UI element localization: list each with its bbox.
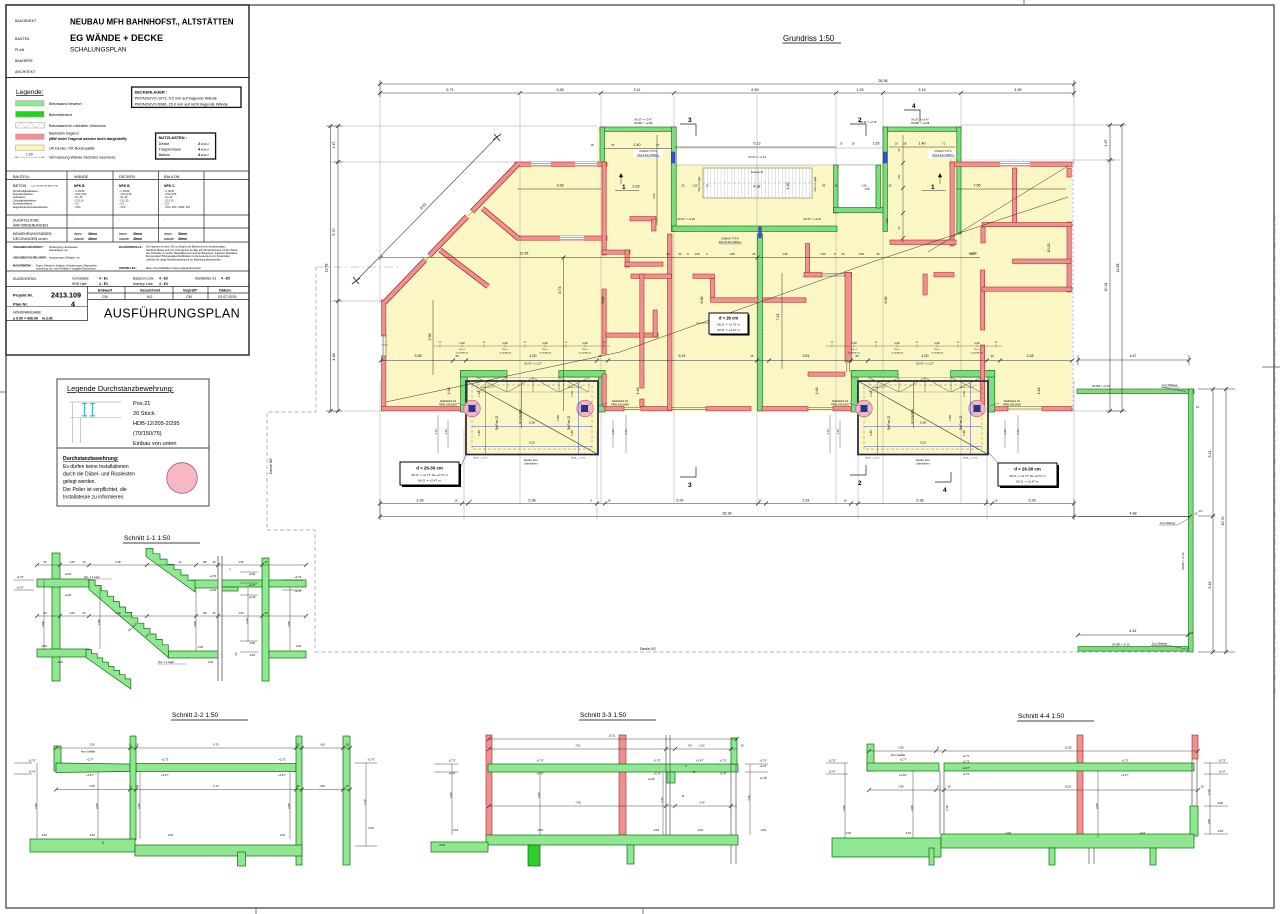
svg-text:OK.B. = +2.73': OK.B. = +2.73' bbox=[963, 458, 978, 460]
svg-text:18': 18' bbox=[903, 142, 907, 146]
svg-text:-0.18: -0.18 bbox=[452, 828, 459, 832]
svg-text:RRW 100/100/6: RRW 100/100/6 bbox=[831, 403, 849, 406]
svg-text:-0.18: -0.18 bbox=[760, 828, 767, 832]
svg-text:72': 72' bbox=[898, 226, 901, 230]
svg-text:+2.21': +2.21' bbox=[962, 772, 970, 776]
svg-text:3: 3 bbox=[198, 153, 200, 157]
svg-text:18: 18 bbox=[741, 744, 744, 748]
svg-text:+2.47': +2.47' bbox=[448, 772, 456, 776]
svg-text:Es dürfen keine Installationen: Es dürfen keine Installationen bbox=[63, 464, 129, 470]
svg-text:Pos.1: Pos.1 bbox=[582, 349, 588, 351]
svg-text:-0.18: -0.18 bbox=[697, 828, 704, 832]
svg-text:G-24/295'-A: G-24/295'-A bbox=[539, 352, 551, 355]
svg-text:2.95: 2.95 bbox=[898, 746, 904, 750]
svg-text:1.86: 1.86 bbox=[729, 252, 735, 256]
svg-text:28.36: 28.36 bbox=[722, 512, 731, 516]
svg-text:Plan Nr.: Plan Nr. bbox=[13, 301, 28, 306]
svg-text:90': 90' bbox=[822, 184, 826, 188]
svg-text:-0.18: -0.18 bbox=[167, 833, 174, 837]
svg-text:UK Decke / OK Bodenplatte: UK Decke / OK Bodenplatte bbox=[49, 146, 95, 150]
svg-text:10.21: 10.21 bbox=[609, 734, 616, 738]
svg-text:25: 25 bbox=[297, 743, 300, 747]
svg-text:BETON: BETON bbox=[13, 183, 27, 188]
svg-text:Pos.21: Pos.21 bbox=[133, 401, 150, 407]
svg-text:+2.47': +2.47' bbox=[1218, 770, 1226, 774]
svg-text:Pos.9 2xL=125cm: Pos.9 2xL=125cm bbox=[933, 153, 954, 157]
svg-text:2.65': 2.65' bbox=[95, 803, 99, 809]
svg-text:OK.BR = +0.10: OK.BR = +0.10 bbox=[1112, 643, 1130, 647]
svg-text:-0.18: -0.18 bbox=[41, 644, 48, 648]
svg-text:1.00: 1.00 bbox=[820, 252, 826, 256]
svg-text:1.00: 1.00 bbox=[694, 252, 700, 256]
svg-text:5x Pos.21: 5x Pos.21 bbox=[959, 415, 963, 430]
svg-text:-0.18: -0.18 bbox=[1217, 829, 1224, 833]
svg-text:4 - E5: 4 - E5 bbox=[221, 276, 230, 280]
svg-text:Pos.2: Pos.2 bbox=[934, 349, 940, 351]
svg-text:OK.BR. = +2.98: OK.BR. = +2.98 bbox=[634, 121, 653, 125]
svg-text:Decke UG: Decke UG bbox=[640, 647, 656, 651]
svg-text:RRW 100/100/6: RRW 100/100/6 bbox=[1003, 403, 1021, 406]
svg-text:HDB Liste: HDB Liste bbox=[72, 282, 87, 286]
svg-text:RRW 100/100/6: RRW 100/100/6 bbox=[439, 403, 457, 406]
svg-text:11.68: 11.68 bbox=[325, 264, 329, 273]
svg-text:OK.B. = +2.77': OK.B. = +2.77' bbox=[480, 387, 495, 389]
svg-text:DECKUNGEN cnom: DECKUNGEN cnom bbox=[13, 237, 48, 241]
svg-text:+2.73': +2.73' bbox=[278, 758, 286, 762]
svg-text:1: 1 bbox=[622, 184, 626, 191]
svg-text:(70/150/75): (70/150/75) bbox=[133, 431, 162, 437]
svg-text:-0.18: -0.18 bbox=[1139, 831, 1146, 835]
svg-text:SPEZIELLES :: SPEZIELLES : bbox=[119, 266, 137, 270]
svg-text:AO: AO bbox=[147, 295, 152, 299]
svg-text:Pos.1 2.Lager: Pos.1 2.Lager bbox=[698, 176, 701, 191]
svg-text:-0.18: -0.18 bbox=[279, 833, 286, 837]
svg-text:NEUBAU MFH BAHNHOFST., ALTSTÄT: NEUBAU MFH BAHNHOFST., ALTSTÄTTEN bbox=[70, 18, 234, 27]
svg-text:innen: innen bbox=[119, 232, 127, 236]
svg-text:+2.47'': +2.47'' bbox=[696, 759, 704, 763]
svg-text:+2.47'': +2.47'' bbox=[1121, 773, 1129, 777]
svg-text:G-24/295-SL: G-24/295-SL bbox=[848, 353, 861, 355]
svg-text:+2.77': +2.77' bbox=[899, 758, 907, 762]
svg-text:4: 4 bbox=[912, 103, 916, 110]
svg-text:AUSFÜHRUNGSPLAN: AUSFÜHRUNGSPLAN bbox=[104, 307, 240, 321]
svg-text:1.65: 1.65 bbox=[238, 611, 244, 615]
svg-text:+2.73': +2.73' bbox=[448, 759, 456, 763]
svg-text:Pos.1 2.Lager: Pos.1 2.Lager bbox=[814, 176, 817, 191]
svg-text:1.05: 1.05 bbox=[69, 560, 75, 564]
svg-text:1.52': 1.52' bbox=[1207, 789, 1211, 795]
svg-text:7.36: 7.36 bbox=[575, 801, 581, 805]
svg-text:-0.18: -0.18 bbox=[41, 833, 48, 837]
svg-text:8.73: 8.73 bbox=[558, 287, 562, 294]
svg-text:+2.77': +2.77' bbox=[86, 758, 94, 762]
svg-text:Isotrepp 16: Isotrepp 16 bbox=[751, 171, 764, 174]
svg-text:16: 16 bbox=[346, 784, 349, 788]
svg-text:RRW 100/100/6: RRW 100/100/6 bbox=[611, 403, 629, 406]
svg-text:4 - E3: 4 - E3 bbox=[159, 276, 168, 280]
svg-text:3.19: 3.19 bbox=[918, 88, 925, 92]
svg-text:95': 95' bbox=[203, 611, 207, 615]
svg-text:+2.81': +2.81' bbox=[64, 572, 72, 576]
svg-text:SCHALUNGSPLAN: SCHALUNGSPLAN bbox=[70, 47, 127, 54]
svg-text:+2.47': +2.47' bbox=[828, 770, 836, 774]
svg-text:ANGABEN ARCHITEKT :: ANGABEN ARCHITEKT : bbox=[13, 245, 45, 249]
svg-text:Datum: Datum bbox=[219, 288, 231, 292]
svg-text:18: 18 bbox=[346, 743, 349, 747]
svg-text:13: 13 bbox=[83, 560, 86, 564]
svg-text:Durchstanzbewehrung:: Durchstanzbewehrung: bbox=[63, 456, 119, 462]
svg-text:11.68: 11.68 bbox=[1116, 264, 1120, 273]
svg-text:OK.W. = +2.70': OK.W. = +2.70' bbox=[859, 120, 877, 124]
svg-text:CM: CM bbox=[102, 295, 108, 299]
svg-text:1.05: 1.05 bbox=[69, 611, 75, 615]
svg-text:1.85: 1.85 bbox=[570, 430, 574, 436]
svg-text:UK.ST. = +2.27': UK.ST. = +2.27' bbox=[524, 362, 543, 366]
svg-text:16: 16 bbox=[213, 611, 216, 615]
svg-text:3.11: 3.11 bbox=[634, 88, 641, 92]
svg-text:-0.44: -0.44 bbox=[207, 660, 214, 664]
svg-text:Pos.16 2xL=125cm: Pos.16 2xL=125cm bbox=[719, 240, 741, 244]
svg-text:4.44': 4.44' bbox=[1129, 629, 1137, 633]
svg-text:+2.73': +2.73' bbox=[367, 758, 375, 762]
svg-text:-0.44: -0.44 bbox=[57, 660, 64, 664]
svg-text:4 - E1: 4 - E1 bbox=[99, 276, 108, 280]
svg-text:2.95: 2.95 bbox=[556, 415, 560, 421]
svg-text:aussen: aussen bbox=[164, 237, 175, 241]
svg-text:1.60: 1.60 bbox=[319, 743, 325, 747]
svg-text:16: 16 bbox=[213, 560, 216, 564]
svg-text:1.65: 1.65 bbox=[861, 184, 867, 188]
svg-text:1.47: 1.47 bbox=[332, 141, 336, 148]
svg-text:1.00: 1.00 bbox=[974, 341, 980, 345]
svg-text:1.12: 1.12 bbox=[477, 391, 481, 397]
svg-text:1.00: 1.00 bbox=[934, 341, 940, 345]
svg-text:UK.D. = +2.47' m: UK.D. = +2.47' m bbox=[1016, 480, 1039, 484]
svg-text:innen: innen bbox=[164, 232, 172, 236]
svg-text:Legende:: Legende: bbox=[16, 89, 44, 96]
svg-text:1.81': 1.81' bbox=[898, 174, 901, 180]
svg-text:-: - bbox=[74, 218, 75, 222]
svg-text:+2.73': +2.73' bbox=[16, 575, 24, 579]
svg-text:OK.BR = +0.10: OK.BR = +0.10 bbox=[1092, 384, 1110, 388]
svg-text:4.18': 4.18' bbox=[115, 560, 121, 564]
svg-text:2.42: 2.42 bbox=[699, 801, 705, 805]
svg-text:+2.73': +2.73' bbox=[161, 758, 169, 762]
svg-text:+2.40'': +2.40'' bbox=[899, 773, 907, 777]
svg-text:2.95: 2.95 bbox=[89, 784, 95, 788]
svg-text:Schnitt 1-1 1:50: Schnitt 1-1 1:50 bbox=[124, 535, 171, 542]
svg-text:Cornaclade: Cornaclade bbox=[72, 276, 89, 280]
svg-text:+2.73': +2.73' bbox=[294, 575, 302, 579]
svg-text:-0.39': -0.39' bbox=[439, 843, 446, 847]
svg-text:OK.B. = +2.73': OK.B. = +2.73' bbox=[865, 458, 880, 460]
svg-text:30mm: 30mm bbox=[133, 232, 142, 236]
svg-text:PRONOUVO-5086, 15.0 mm auf nic: PRONOUVO-5086, 15.0 mm auf nicht tragend… bbox=[135, 102, 228, 106]
svg-text:3: 3 bbox=[688, 482, 692, 489]
svg-text:1.32: 1.32 bbox=[885, 218, 889, 224]
svg-text:MAUERWERK :: MAUERWERK : bbox=[13, 263, 33, 267]
svg-text:6.24: 6.24 bbox=[676, 499, 683, 503]
svg-text:CM: CM bbox=[186, 295, 192, 299]
svg-text:PRONOUVO-1073, 5.0 mm auf trag: PRONOUVO-1073, 5.0 mm auf tragende Wände bbox=[135, 97, 217, 101]
svg-text:03.07.2025: 03.07.2025 bbox=[218, 295, 236, 299]
svg-text:abgedeckte Expositionsklassen: abgedeckte Expositionsklassen : bbox=[13, 206, 50, 209]
svg-text:2.36: 2.36 bbox=[747, 795, 751, 801]
svg-text:Backstein tragend: Backstein tragend bbox=[49, 131, 79, 135]
svg-text:+2.73': +2.73' bbox=[536, 759, 544, 763]
svg-text:25: 25 bbox=[265, 560, 268, 564]
svg-text:OK.B. = +2.73': OK.B. = +2.73' bbox=[473, 458, 488, 460]
svg-text:+2.47'': +2.47'' bbox=[278, 773, 286, 777]
svg-text:20 Stück: 20 Stück bbox=[133, 411, 155, 417]
svg-text:2.34: 2.34 bbox=[245, 618, 249, 624]
svg-text:72': 72' bbox=[898, 148, 901, 152]
svg-text:Stahlstütze S1: Stahlstütze S1 bbox=[195, 276, 216, 280]
svg-text:+2.73': +2.73' bbox=[28, 759, 36, 763]
svg-text:18: 18 bbox=[136, 784, 139, 788]
svg-text:NPK B: NPK B bbox=[119, 184, 130, 188]
svg-text:4 - E2: 4 - E2 bbox=[99, 282, 108, 286]
svg-text:OK.B. = +2.73': OK.B. = +2.73' bbox=[571, 458, 586, 460]
svg-text:Pos. 1 2.Lager: Pos. 1 2.Lager bbox=[158, 661, 174, 664]
svg-text:40mm: 40mm bbox=[133, 237, 142, 241]
svg-text:1cm Dilafuge: 1cm Dilafuge bbox=[1160, 521, 1176, 525]
svg-text:2.65': 2.65' bbox=[910, 805, 914, 811]
svg-text:3: 3 bbox=[688, 117, 692, 124]
svg-text:Pos.2: Pos.2 bbox=[542, 349, 548, 351]
svg-text:ZUGEHÖRIG:: ZUGEHÖRIG: bbox=[13, 277, 37, 281]
svg-text:12': 12' bbox=[234, 652, 238, 656]
svg-text:DECKENLAGER :: DECKENLAGER : bbox=[135, 89, 167, 94]
svg-text:Treppenhaus: Treppenhaus bbox=[159, 148, 181, 152]
svg-text:UK.D. = +2.47' m: UK.D. = +2.47' m bbox=[418, 479, 441, 483]
svg-text:7.59: 7.59 bbox=[968, 252, 974, 256]
svg-text:ANFORDERUNGEN: ANFORDERUNGEN bbox=[13, 223, 48, 227]
svg-text:1.48: 1.48 bbox=[636, 388, 640, 395]
svg-text:2.65': 2.65' bbox=[1095, 803, 1099, 809]
svg-text:Grundriss 1:50: Grundriss 1:50 bbox=[783, 34, 835, 43]
svg-text:5.66: 5.66 bbox=[884, 297, 888, 304]
svg-text:25: 25 bbox=[44, 611, 47, 615]
svg-text:5.38: 5.38 bbox=[528, 499, 535, 503]
svg-text:2.98: 2.98 bbox=[428, 334, 432, 341]
svg-text:-0.18: -0.18 bbox=[537, 828, 544, 832]
svg-text:4.00: 4.00 bbox=[530, 354, 537, 358]
svg-text:6.70: 6.70 bbox=[213, 743, 219, 747]
svg-text:4cm Gefälle: 4cm Gefälle bbox=[891, 753, 906, 757]
svg-text:+2.47': +2.47' bbox=[16, 586, 24, 590]
svg-text:1.47: 1.47 bbox=[1104, 139, 1108, 146]
svg-text:Der Polier ist verpflichtet, d: Der Polier ist verpflichtet, die bbox=[63, 487, 127, 493]
svg-text:Isotrepp Liste: Isotrepp Liste bbox=[133, 282, 153, 286]
svg-text:71': 71' bbox=[942, 142, 946, 146]
svg-text:0.05: 0.05 bbox=[368, 826, 374, 830]
svg-text:-0.18: -0.18 bbox=[1005, 831, 1012, 835]
svg-text:PLAN: PLAN bbox=[15, 48, 25, 52]
svg-text:OK.BR = +0.10: OK.BR = +0.10 bbox=[1181, 552, 1185, 570]
svg-text:+2.73': +2.73' bbox=[759, 759, 767, 763]
svg-text:EG WÄNDE + DECKE: EG WÄNDE + DECKE bbox=[70, 33, 163, 43]
svg-text:+2.60': +2.60' bbox=[64, 593, 72, 597]
svg-text:d = 26-30 cm: d = 26-30 cm bbox=[416, 466, 443, 471]
svg-text:2.68': 2.68' bbox=[287, 621, 291, 627]
svg-text:+2.47': +2.47' bbox=[719, 772, 727, 776]
svg-text:1.65: 1.65 bbox=[864, 187, 870, 191]
svg-text:4.48: 4.48 bbox=[332, 353, 336, 360]
svg-text:kN/m²: kN/m² bbox=[201, 142, 209, 146]
svg-text:- XC4, XD1, XD2b, XF1: - XC4, XD1, XD2b, XF1 bbox=[164, 206, 191, 209]
svg-text:10.76: 10.76 bbox=[1221, 517, 1225, 526]
svg-text:BAUKONTROLLE :: BAUKONTROLLE : bbox=[119, 245, 143, 249]
svg-text:und/oder die nötige Nachbehand: und/oder die nötige Nachbehandlung mit d… bbox=[146, 258, 222, 261]
svg-text:1.34: 1.34 bbox=[836, 429, 840, 435]
svg-text:7.56: 7.56 bbox=[974, 184, 981, 188]
svg-text:3.51: 3.51 bbox=[803, 354, 810, 358]
svg-text:5.28: 5.28 bbox=[920, 421, 926, 425]
svg-text:UK.ST. = +2.05: UK.ST. = +2.05 bbox=[677, 217, 695, 221]
svg-text:+2.18: +2.18 bbox=[760, 776, 767, 780]
svg-text:überhöhen: überhöhen bbox=[524, 462, 538, 466]
svg-text:G-24/295'-A: G-24/295'-A bbox=[891, 352, 903, 355]
svg-text:5.18: 5.18 bbox=[1208, 582, 1212, 589]
svg-text:-: - bbox=[164, 218, 165, 222]
svg-text:1cm Dilafuge: 1cm Dilafuge bbox=[1162, 383, 1178, 387]
svg-text:Hebeanlagen, etc.: Hebeanlagen, etc. bbox=[49, 249, 69, 252]
svg-text:5x Pos.21: 5x Pos.21 bbox=[495, 415, 499, 430]
svg-text:-0.05: -0.05 bbox=[249, 641, 256, 645]
svg-text:-0.18: -0.18 bbox=[89, 833, 96, 837]
svg-text:innen: innen bbox=[74, 232, 82, 236]
svg-text:NUTZLASTEN :: NUTZLASTEN : bbox=[159, 135, 187, 140]
svg-text:G-24/295'-A: G-24/295'-A bbox=[931, 352, 943, 355]
svg-text:1.85: 1.85 bbox=[869, 430, 873, 436]
svg-text:+2.47'': +2.47'' bbox=[161, 773, 169, 777]
svg-text:Eisen ohne Drahthalten müssen: Eisen ohne Drahthalten müssen abgedeckt … bbox=[146, 267, 201, 270]
svg-text:40mm: 40mm bbox=[178, 237, 187, 241]
svg-text:6.59: 6.59 bbox=[751, 88, 758, 92]
svg-text:4cm Gefälle: 4cm Gefälle bbox=[81, 750, 96, 754]
svg-text:CONAX TYP A: CONAX TYP A bbox=[934, 149, 951, 153]
svg-text:Balkon: Balkon bbox=[159, 153, 171, 157]
svg-text:1.85: 1.85 bbox=[962, 430, 966, 436]
svg-text:1.65: 1.65 bbox=[873, 142, 880, 146]
svg-text:BAUOBJEKT: BAUOBJEKT bbox=[15, 19, 37, 23]
svg-text:+2.13: +2.13 bbox=[654, 772, 661, 776]
svg-text:-0.18: -0.18 bbox=[905, 831, 912, 835]
svg-text:+2.73': +2.73' bbox=[209, 574, 217, 578]
svg-text:+2.73': +2.73' bbox=[1218, 759, 1226, 763]
svg-text:2: 2 bbox=[198, 142, 200, 146]
svg-text:(R): (R) bbox=[688, 746, 691, 748]
svg-text:5.21: 5.21 bbox=[1208, 451, 1212, 458]
svg-text:+2.47': +2.47' bbox=[536, 772, 544, 776]
svg-text:1.34: 1.34 bbox=[444, 429, 448, 435]
svg-text:Installateure zu informieren.: Installateure zu informieren. bbox=[63, 494, 125, 500]
svg-text:+2.47': +2.47' bbox=[759, 764, 767, 768]
svg-text:Pos.2: Pos.2 bbox=[502, 349, 508, 351]
svg-text:4 - E4: 4 - E4 bbox=[159, 282, 168, 286]
svg-text:10.21: 10.21 bbox=[1104, 282, 1108, 291]
svg-text:BALKON: BALKON bbox=[164, 175, 180, 179]
svg-text:2.65': 2.65' bbox=[449, 792, 453, 798]
svg-text:-: - bbox=[119, 218, 120, 222]
svg-text:1.00: 1.00 bbox=[459, 341, 465, 345]
svg-text:3.28: 3.28 bbox=[415, 354, 422, 358]
svg-text:1.65: 1.65 bbox=[238, 560, 244, 564]
svg-text:2.23: 2.23 bbox=[660, 797, 664, 803]
svg-text:10.38: 10.38 bbox=[1065, 746, 1072, 750]
svg-text:Projekt Nr.: Projekt Nr. bbox=[13, 292, 33, 297]
svg-text:2.93: 2.93 bbox=[633, 185, 640, 189]
svg-text:OK.B. = +2.77': OK.B. = +2.77' bbox=[568, 387, 583, 389]
svg-text:5.71: 5.71 bbox=[446, 88, 453, 92]
svg-text:Pos.1: Pos.1 bbox=[851, 349, 857, 351]
svg-text:BAUTEIL: BAUTEIL bbox=[15, 37, 30, 41]
svg-text:1.00: 1.00 bbox=[502, 341, 508, 345]
svg-text:DECKEN: DECKEN bbox=[119, 175, 135, 179]
svg-text:5.38: 5.38 bbox=[916, 499, 923, 503]
svg-text:2.65': 2.65' bbox=[842, 805, 846, 811]
svg-text:5.28: 5.28 bbox=[529, 421, 535, 425]
svg-text:1.48: 1.48 bbox=[447, 388, 451, 395]
svg-text:2: 2 bbox=[858, 480, 862, 487]
svg-text:11.95: 11.95 bbox=[520, 252, 529, 256]
svg-text:30mm: 30mm bbox=[88, 232, 97, 236]
svg-text:+2.73': +2.73' bbox=[653, 759, 661, 763]
svg-text:2.68': 2.68' bbox=[97, 619, 101, 625]
svg-text:UK.ST. = +2.19: UK.ST. = +2.19 bbox=[748, 155, 766, 159]
svg-text:Geprüft: Geprüft bbox=[183, 288, 197, 292]
svg-text:-0.18: -0.18 bbox=[295, 644, 302, 648]
svg-text:+2.47'': +2.47'' bbox=[86, 773, 94, 777]
svg-text:1.00: 1.00 bbox=[582, 341, 588, 345]
svg-text:18: 18 bbox=[948, 785, 951, 789]
svg-text:24': 24' bbox=[82, 611, 86, 615]
svg-text:-0.18: -0.18 bbox=[845, 831, 852, 835]
svg-text:Pos.9 2xL=125cm: Pos.9 2xL=125cm bbox=[638, 153, 659, 157]
svg-text:2.95: 2.95 bbox=[89, 743, 95, 747]
svg-text:28.36: 28.36 bbox=[878, 79, 887, 83]
svg-text:+2.73': +2.73' bbox=[962, 760, 970, 764]
svg-text:18: 18 bbox=[136, 743, 139, 747]
svg-text:- XC3: - XC3 bbox=[74, 206, 81, 209]
svg-text:4.39': 4.39' bbox=[115, 611, 121, 615]
svg-text:(MW nicht Tragend werden nicht: (MW nicht Tragend werden nicht dargestel… bbox=[49, 137, 127, 141]
svg-text:16': 16' bbox=[1199, 509, 1203, 513]
svg-text:1.73: 1.73 bbox=[826, 429, 830, 435]
svg-text:d = 26 cm: d = 26 cm bbox=[719, 316, 738, 321]
svg-text:2.42: 2.42 bbox=[652, 193, 656, 199]
svg-text:1.48: 1.48 bbox=[1037, 388, 1041, 395]
svg-text:5.02: 5.02 bbox=[920, 441, 926, 445]
svg-text:2.95: 2.95 bbox=[898, 785, 904, 789]
svg-text:3.28: 3.28 bbox=[556, 88, 563, 92]
svg-text:1.12: 1.12 bbox=[962, 391, 966, 397]
svg-text:1.20: 1.20 bbox=[786, 183, 790, 190]
svg-text:G-24/295-SL: G-24/295-SL bbox=[579, 353, 592, 355]
svg-text:Pos.1: Pos.1 bbox=[974, 349, 980, 351]
svg-text:+2.47': +2.47' bbox=[248, 583, 256, 587]
svg-text:G-24/295-SL: G-24/295-SL bbox=[456, 353, 469, 355]
svg-text:Schnitt 2-2 1:50: Schnitt 2-2 1:50 bbox=[172, 712, 219, 719]
svg-text:30mm: 30mm bbox=[178, 232, 187, 236]
svg-text:2.65': 2.65' bbox=[137, 803, 141, 809]
svg-text:1.93: 1.93 bbox=[856, 88, 863, 92]
svg-text:OK.B. = +2.77': OK.B. = +2.77' bbox=[872, 387, 887, 389]
svg-text:4: 4 bbox=[71, 299, 75, 308]
svg-text:1.73: 1.73 bbox=[434, 429, 438, 435]
svg-text:bewehrung, etc. nach Profilitt: bewehrung, etc. nach Profilitten / Vorga… bbox=[36, 268, 96, 271]
